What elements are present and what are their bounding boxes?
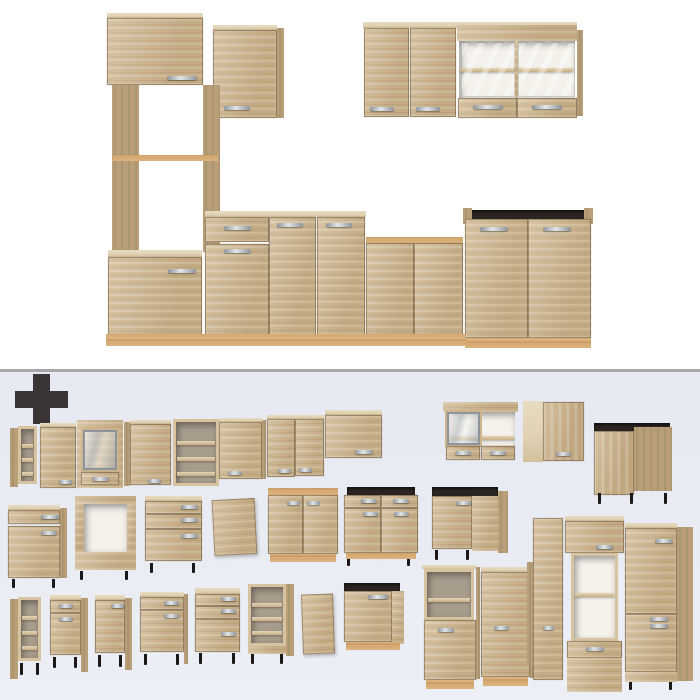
glass-door-panel xyxy=(518,42,575,97)
cabinet-door xyxy=(381,508,418,553)
open-shelf-compartment xyxy=(424,569,474,620)
cabinet-leg xyxy=(199,653,202,664)
front-panel xyxy=(515,41,518,98)
side-panel xyxy=(476,567,480,679)
open-shelf-compartment xyxy=(84,504,127,552)
cabinet-door xyxy=(268,495,303,554)
cabinet-door xyxy=(465,219,528,338)
cabinet-door xyxy=(40,427,76,488)
door-handle xyxy=(59,604,73,608)
cabinet-leg xyxy=(435,550,438,560)
open-shelf-wall-unit xyxy=(10,426,37,487)
cabinet-door xyxy=(108,257,202,336)
cabinet-leg xyxy=(347,559,350,566)
front-panel xyxy=(392,591,404,644)
door-handle xyxy=(438,628,454,632)
corner-wall-cabinet xyxy=(523,401,584,463)
door-handle xyxy=(655,539,673,543)
cabinet-leg xyxy=(98,655,101,667)
side-panel xyxy=(10,428,18,487)
cabinet-legs xyxy=(10,663,41,675)
door-handle xyxy=(164,601,179,605)
cabinet-door xyxy=(95,600,125,653)
drawer-front xyxy=(8,510,60,524)
cabinet-leg xyxy=(630,493,633,504)
glass-door-panel xyxy=(447,412,480,445)
drawer-front xyxy=(458,98,517,118)
door-handle xyxy=(361,499,377,503)
cabinet-door xyxy=(432,496,472,549)
door-handle xyxy=(586,647,604,651)
door-handle xyxy=(181,534,198,538)
cabinet-door xyxy=(50,613,81,655)
open-shelf-compartment xyxy=(571,553,618,641)
tall-cabinet-rear xyxy=(527,518,563,682)
tall-unit-base-cabinet xyxy=(108,250,202,336)
shelf xyxy=(22,444,33,448)
cabinet-door xyxy=(213,30,277,118)
shelf xyxy=(22,472,33,476)
cabinet-legs xyxy=(145,563,202,573)
door-handle xyxy=(596,545,613,549)
shelf xyxy=(428,598,470,602)
cabinet-door xyxy=(625,528,677,614)
side-panel xyxy=(677,527,693,681)
drawer-front xyxy=(145,501,202,514)
cabinet-leg xyxy=(74,657,77,668)
cabinet-legs xyxy=(8,579,67,588)
door-handle xyxy=(416,107,440,111)
door-handle xyxy=(224,226,251,230)
appliance-front-panel xyxy=(213,499,256,557)
base-1-door-60 xyxy=(342,581,404,653)
drawer-front xyxy=(145,514,202,529)
door-handle xyxy=(168,269,196,273)
front-panel xyxy=(625,672,677,682)
glass-door-panel xyxy=(461,42,515,97)
shelf xyxy=(22,458,33,462)
oven-housing-base-cabinet xyxy=(75,496,136,580)
cabinet-door xyxy=(140,610,184,652)
door-handle xyxy=(299,468,312,472)
door-handle xyxy=(456,501,471,505)
cabinet-door xyxy=(325,415,382,458)
door-handle xyxy=(394,512,409,516)
wall-display-cabinet xyxy=(443,402,518,463)
drawer-front xyxy=(205,217,269,242)
side-panel xyxy=(60,508,67,578)
front-panel xyxy=(457,25,577,41)
cabinet-leg xyxy=(80,571,83,580)
appliance-front-panel xyxy=(212,498,258,556)
cabinet-legs xyxy=(592,493,674,504)
cabinet-door xyxy=(8,526,60,578)
front-panel xyxy=(567,658,622,692)
wall-flap-cabinet xyxy=(325,410,382,460)
cabinet-legs xyxy=(95,655,132,667)
base-drawer-unit xyxy=(205,211,269,336)
cabinet-legs xyxy=(140,654,188,665)
cabinet-door xyxy=(344,591,392,642)
tall-cabinet-2-door xyxy=(625,523,693,690)
door-handle xyxy=(287,501,300,505)
appliance-front-panel xyxy=(301,593,335,654)
door-handle xyxy=(393,499,409,503)
shelf xyxy=(177,441,215,445)
cabinet-leg xyxy=(629,682,632,690)
corner-base-cabinet xyxy=(592,423,674,505)
door-handle xyxy=(41,531,57,535)
glass-door-panel xyxy=(83,430,117,470)
cabinet-door xyxy=(424,620,476,680)
door-handle xyxy=(355,450,373,454)
door-handle xyxy=(181,505,198,509)
sink-base-cabinet xyxy=(366,237,463,336)
base-drawer-door-30 xyxy=(50,595,88,675)
wall-cabinet-2-door xyxy=(267,415,324,479)
cabinet-legs xyxy=(50,657,88,668)
base-1-door-30 xyxy=(95,595,132,675)
front-panel xyxy=(75,496,136,504)
cabinet-leg xyxy=(53,657,56,668)
door-handle xyxy=(494,626,509,630)
wall-glass-cabinet xyxy=(77,420,123,488)
cabinet-leg xyxy=(232,653,235,664)
door-handle xyxy=(490,451,506,455)
shelf xyxy=(252,617,282,621)
base-cabinet-door-drawer-50 xyxy=(8,505,67,588)
drawer-front xyxy=(567,641,622,658)
door-handle xyxy=(224,106,250,110)
open-top-cavity xyxy=(432,487,498,496)
cabinet-door xyxy=(130,424,171,485)
door-handle xyxy=(650,617,668,621)
door-handle xyxy=(221,632,236,636)
front-panel xyxy=(75,552,136,570)
door-handle xyxy=(370,107,394,111)
cabinet-door xyxy=(528,219,591,338)
plinth-panel xyxy=(483,677,528,686)
cabinet-door xyxy=(533,518,563,680)
door-handle xyxy=(148,479,161,483)
door-handle xyxy=(556,452,571,456)
shelf xyxy=(252,603,282,607)
cabinet-door xyxy=(317,217,365,335)
shelf xyxy=(177,472,215,476)
door-handle xyxy=(480,227,508,231)
wall-cabinet-group xyxy=(363,22,583,120)
door-handle xyxy=(277,223,303,227)
door-handle xyxy=(41,515,59,519)
front-panel xyxy=(248,646,286,654)
cabinet-door xyxy=(295,419,324,476)
cabinet-door xyxy=(344,508,381,553)
top-panel xyxy=(523,401,543,462)
shelf xyxy=(575,593,614,597)
door-handle xyxy=(307,501,320,505)
cabinet-leg xyxy=(407,559,410,566)
drawer-front xyxy=(481,446,515,460)
cabinet-door xyxy=(364,28,409,117)
cabinet-door xyxy=(205,244,269,336)
cabinet-leg xyxy=(466,550,469,560)
section-divider xyxy=(0,369,700,372)
open-shelf-base-unit xyxy=(10,597,41,681)
cabinet-legs xyxy=(195,653,244,664)
shelf xyxy=(177,457,215,461)
open-shelf-compartment xyxy=(18,597,41,661)
door-handle xyxy=(650,624,668,628)
drawer-front xyxy=(344,495,381,508)
cabinet-door xyxy=(565,521,624,553)
wall-cabinet-1-door-45 xyxy=(219,418,266,481)
base-cabinet-2-door-2-drawer xyxy=(343,485,419,567)
shelf xyxy=(22,631,37,635)
cabinet-door xyxy=(269,217,316,335)
cabinet-door xyxy=(543,402,584,461)
plus-icon xyxy=(15,374,68,424)
side-panel xyxy=(262,420,266,479)
top-panel xyxy=(108,250,202,257)
side-panel xyxy=(634,427,672,491)
cabinet-leg xyxy=(192,563,195,573)
open-shelf-compartment xyxy=(248,584,286,646)
open-shelf-wall-cabinet xyxy=(173,419,219,486)
tall-microwave-cabinet xyxy=(422,565,480,689)
cabinet-leg xyxy=(20,663,23,675)
cabinet-door xyxy=(410,28,456,117)
plinth-panel xyxy=(346,642,400,650)
cabinet-legs xyxy=(430,550,508,560)
door-handle xyxy=(532,105,562,109)
cabinet-door xyxy=(107,18,203,85)
side-panel xyxy=(286,584,294,656)
appliance-front-panel-small xyxy=(302,594,334,656)
plinth-panel xyxy=(426,680,474,689)
cabinet-leg xyxy=(12,579,15,588)
drawer-front xyxy=(446,446,480,460)
plinth-panel xyxy=(270,554,336,562)
door-handle xyxy=(111,604,124,608)
door-handle xyxy=(221,609,236,613)
door-handle xyxy=(92,477,109,481)
shelf xyxy=(252,631,282,635)
cabinet-legs xyxy=(625,682,693,690)
side-panel xyxy=(577,30,583,116)
door-handle xyxy=(455,451,471,455)
open-shelf-compartment xyxy=(173,419,219,486)
base-drawers-unit xyxy=(195,588,244,670)
drawer-front xyxy=(140,597,184,610)
cabinet-door xyxy=(366,243,414,336)
front-panel xyxy=(443,402,518,412)
open-shelf-compartment xyxy=(18,426,37,484)
base-cabinet-2-door xyxy=(268,211,366,335)
drawer-front xyxy=(50,600,81,613)
wall-cabinet-1-door-50 xyxy=(124,420,171,487)
sink-base-2-door xyxy=(268,488,338,565)
door-handle xyxy=(368,595,388,599)
door-handle xyxy=(473,105,503,109)
door-handle xyxy=(363,512,378,516)
front-panel xyxy=(75,504,84,552)
tall-unit-left-post xyxy=(112,85,139,252)
cabinet-leg xyxy=(119,655,122,667)
cabinet-leg xyxy=(176,654,179,665)
plinth-panel xyxy=(106,334,466,346)
wall-cabinet-1-door-40 xyxy=(40,423,76,488)
drawer-front xyxy=(381,495,418,508)
door-handle xyxy=(59,617,73,621)
door-handle xyxy=(278,469,291,473)
cabinet-door xyxy=(481,572,530,677)
cabinet-door xyxy=(219,422,262,479)
cabinet-leg xyxy=(125,571,128,580)
wall-cabinet-upper xyxy=(213,25,284,120)
drawer-front xyxy=(145,529,202,561)
tall-unit-shelf xyxy=(113,155,218,161)
tall-unit-top-cabinet xyxy=(107,13,203,85)
cabinet-leg xyxy=(144,654,147,665)
cabinet-leg xyxy=(36,663,39,675)
shelf xyxy=(22,646,37,650)
cabinet-leg xyxy=(150,563,153,573)
door-handle xyxy=(224,249,251,253)
door-handle xyxy=(228,471,242,475)
cabinet-leg xyxy=(664,493,667,504)
plinth-panel xyxy=(465,338,591,348)
cabinet-leg xyxy=(52,579,55,588)
drawer-front xyxy=(195,619,240,652)
drawer-front xyxy=(517,98,577,118)
product-image xyxy=(0,0,700,700)
cabinet-door xyxy=(267,419,295,477)
door-handle xyxy=(59,480,72,484)
door-handle xyxy=(543,626,554,630)
cabinet-legs xyxy=(75,571,136,580)
cabinet-leg xyxy=(280,654,283,664)
plinth-panel xyxy=(268,488,338,495)
cabinet-door xyxy=(594,431,634,495)
front-panel xyxy=(472,496,498,551)
cabinet-leg xyxy=(251,654,254,664)
drawer-front xyxy=(81,472,119,485)
front-panel xyxy=(127,504,136,552)
cabinet-door xyxy=(303,495,338,554)
cabinet-legs xyxy=(343,559,419,566)
door-handle xyxy=(181,518,198,522)
plinth-panel xyxy=(113,155,218,161)
side-panel xyxy=(498,491,508,553)
base-cabinet-3-drawer xyxy=(145,496,202,576)
kitchen-plinth xyxy=(106,334,466,346)
cabinet-door xyxy=(625,614,677,672)
door-handle xyxy=(543,227,571,231)
cabinet-leg xyxy=(669,682,672,690)
drawer-front xyxy=(195,606,240,619)
plus-icon xyxy=(33,374,50,424)
side-panel xyxy=(277,28,284,118)
tall-oven-tower xyxy=(565,516,624,692)
door-handle xyxy=(221,597,236,601)
open-top-cavity xyxy=(347,487,415,495)
side-panel xyxy=(112,85,139,252)
corner-base-blind-cabinet xyxy=(430,482,508,562)
door-handle xyxy=(326,223,352,227)
base-drawer-door-40 xyxy=(140,592,188,672)
drawer-front xyxy=(195,594,240,606)
cabinet-legs xyxy=(248,654,294,664)
shelf xyxy=(22,616,37,620)
open-shelf-base-45 xyxy=(248,584,294,664)
door-handle xyxy=(164,614,179,618)
base-cabinet-2-door-tall xyxy=(463,208,593,348)
cabinet-door xyxy=(414,243,463,336)
cabinet-leg xyxy=(598,493,601,504)
door-handle xyxy=(167,76,197,80)
